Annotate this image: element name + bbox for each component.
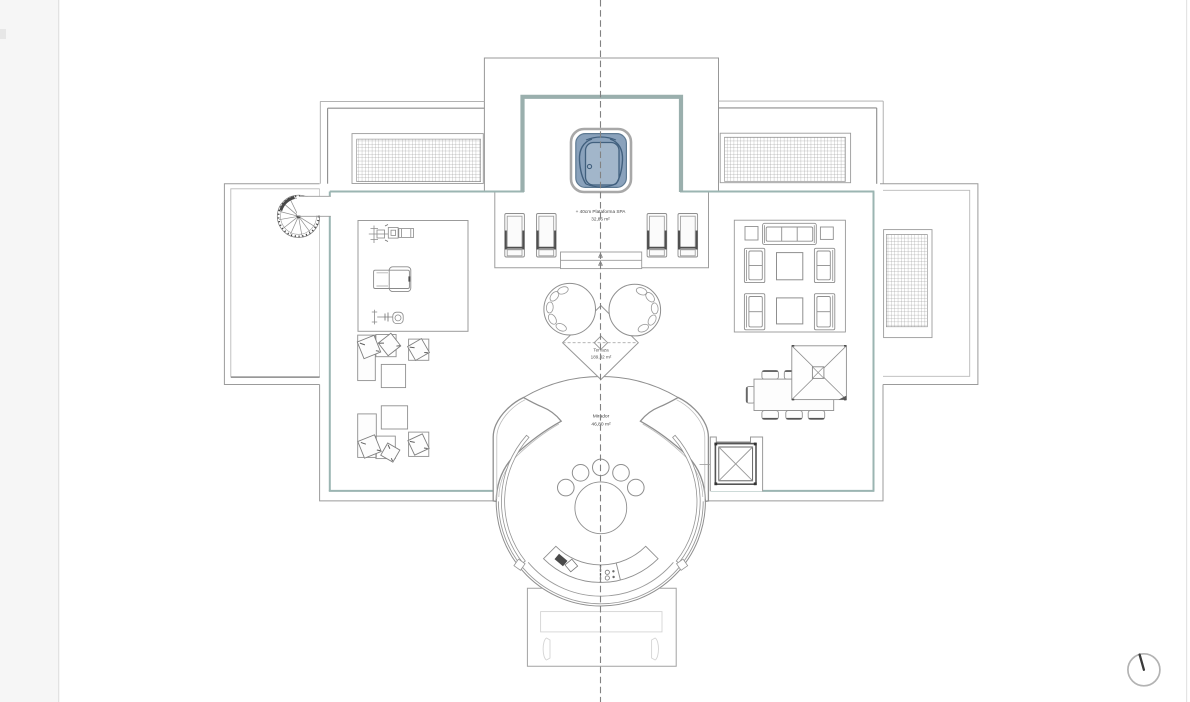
svg-text:46,80 m²: 46,80 m² xyxy=(591,422,611,428)
svg-text:Terraza: Terraza xyxy=(593,347,609,352)
svg-text:Mirador: Mirador xyxy=(593,414,610,420)
svg-text:189,32 m²: 189,32 m² xyxy=(591,354,612,359)
